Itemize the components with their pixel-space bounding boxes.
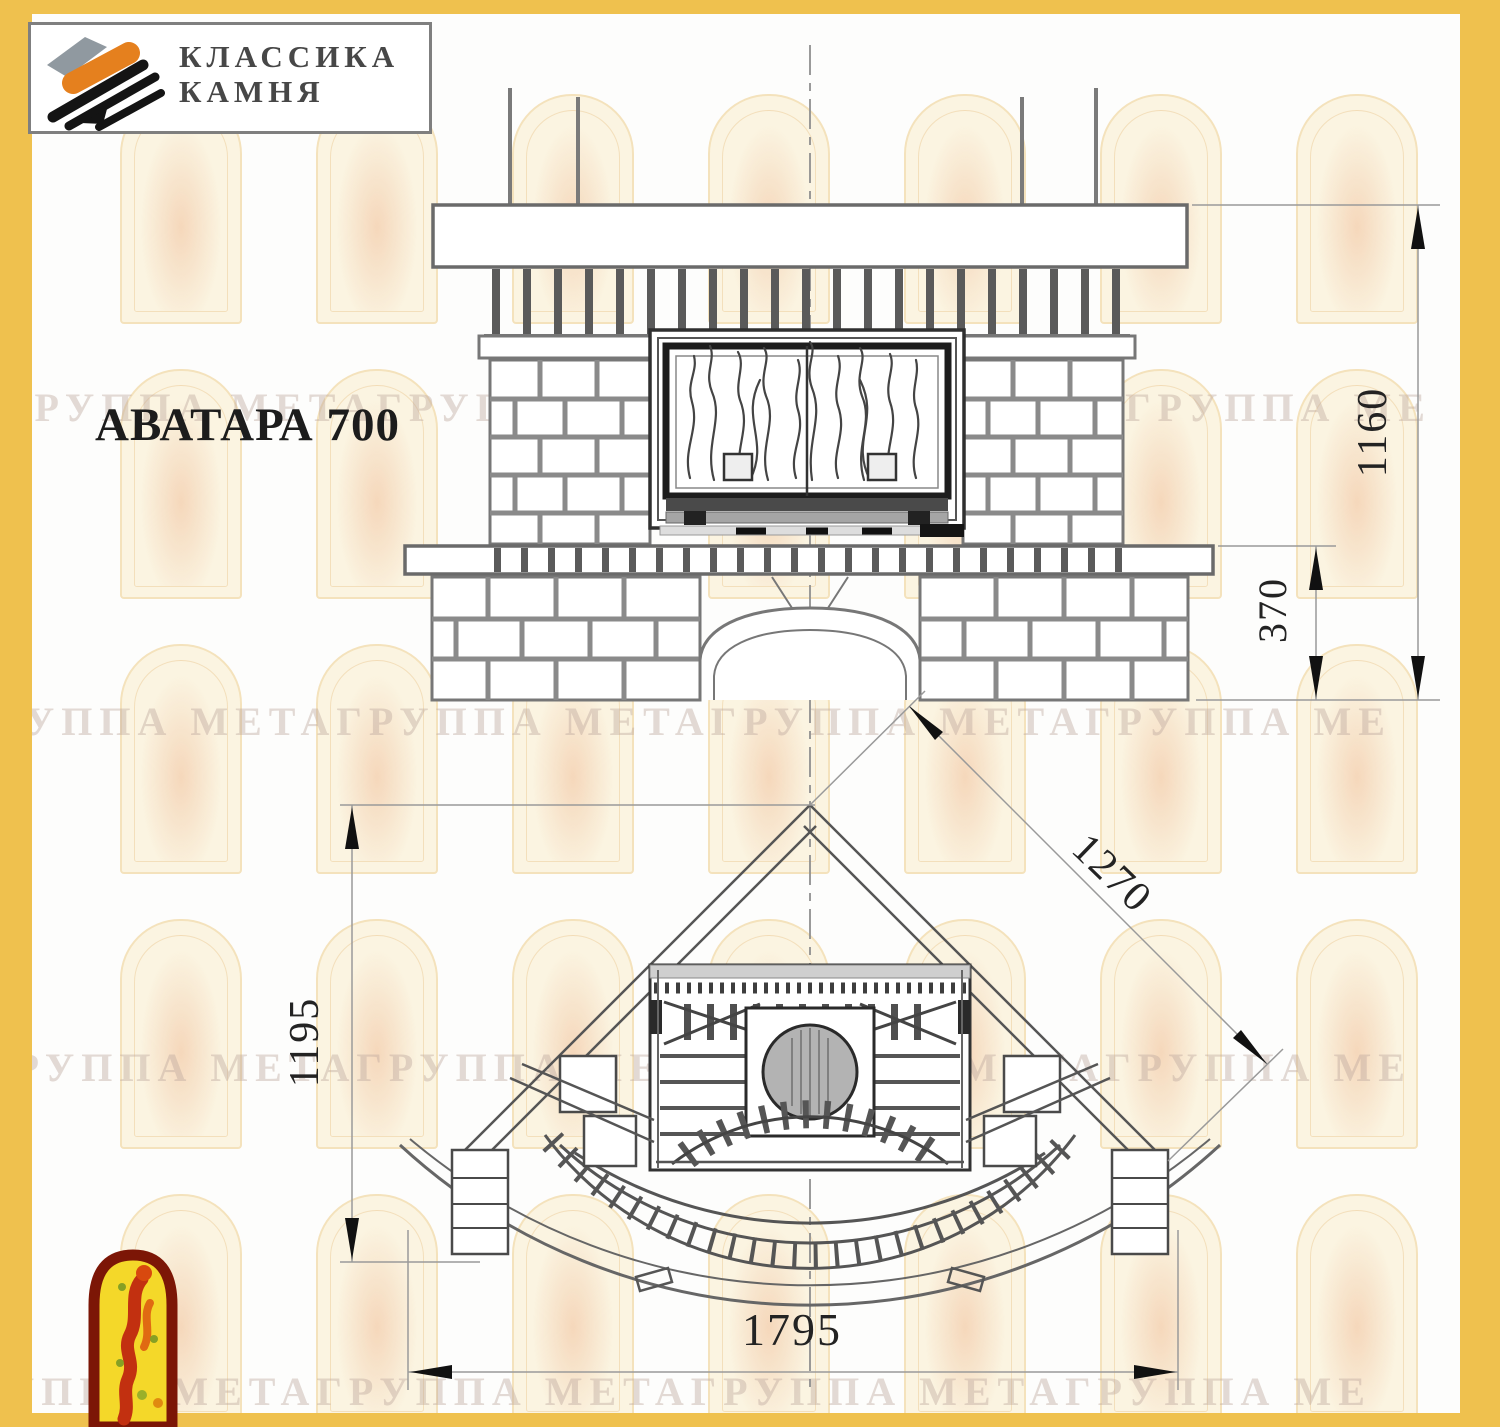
base-left-block [432,577,700,700]
model-title: АВАТАРА 700 [95,398,400,452]
log-left [724,454,752,480]
dim-depth-label: 1195 [282,997,328,1087]
firebox [650,330,964,537]
base-right-block [920,577,1188,700]
brand-logo-icon [41,31,171,131]
front-elevation-view [405,88,1213,700]
right-brick-pier [963,360,1123,544]
dim-hearth-height-label: 370 [1250,577,1295,643]
chimney-pipes [510,88,1096,205]
dim-overall-width-label: 1795 [742,1304,842,1355]
brand-name: КЛАССИКА КАМНЯ [179,39,399,109]
fireplace-technical-drawing: 1160 370 1195 1270 1795 [0,0,1500,1427]
left-pier-ledge [479,336,663,358]
meta-arch-emblem [84,1243,182,1427]
dim-total-height-label: 1160 [1350,387,1396,477]
brand-logo-box: КЛАССИКА КАМНЯ [28,22,432,134]
plan-firebox-unit [650,965,970,1170]
brand-name-line1: КЛАССИКА [179,39,399,74]
left-brick-pier [490,360,650,544]
brand-name-line2: КАМНЯ [179,74,399,109]
log-right [868,454,896,480]
mantel-shelf [433,205,1187,267]
page-background: ГРУППА МЕТАГРУППА МЕТАГРУППА МЕТАГРУППА … [0,0,1500,1427]
right-pier-ledge [951,336,1135,358]
